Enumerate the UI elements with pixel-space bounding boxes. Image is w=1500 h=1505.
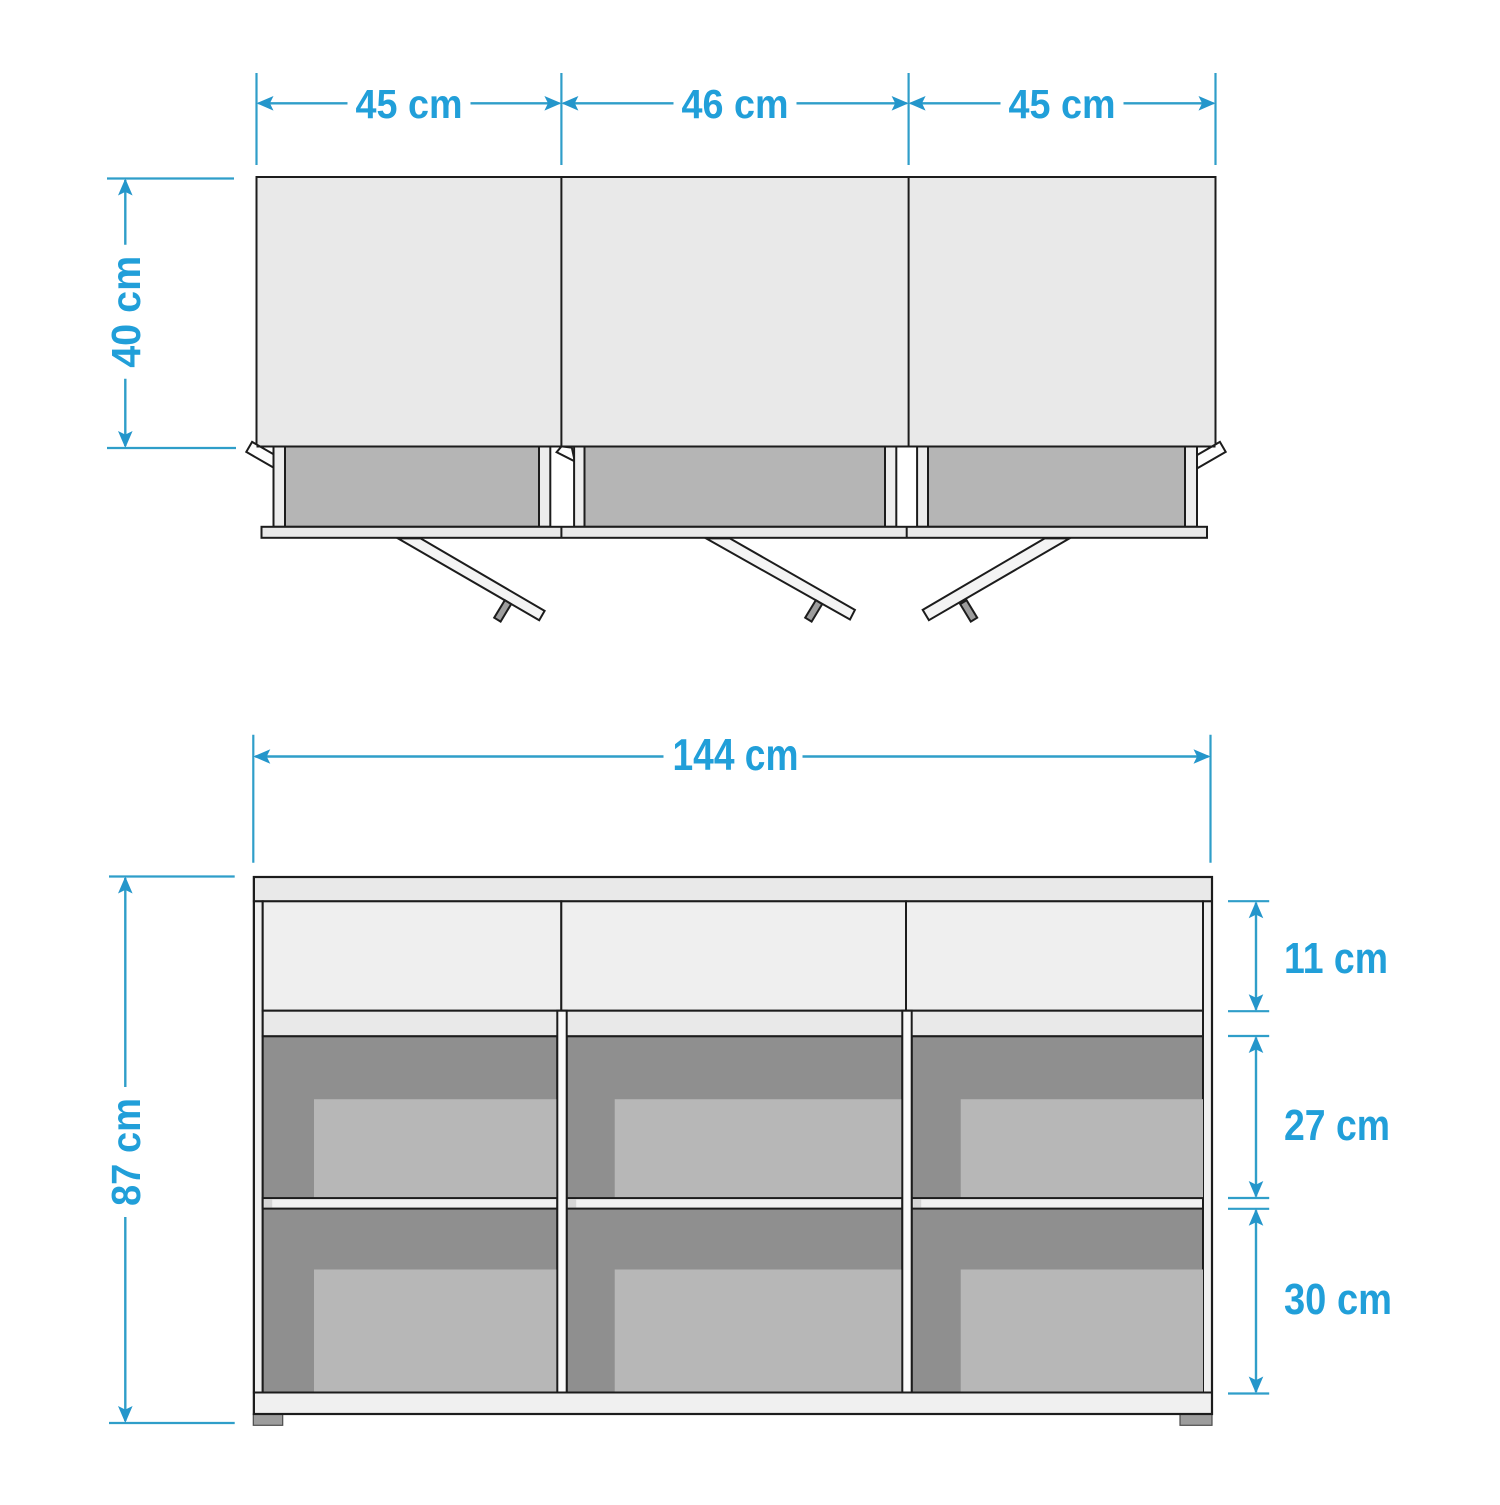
- svg-text:144 cm: 144 cm: [673, 731, 799, 780]
- svg-text:45 cm: 45 cm: [356, 81, 463, 127]
- svg-text:40 cm: 40 cm: [103, 256, 149, 368]
- svg-text:46 cm: 46 cm: [682, 81, 789, 127]
- svg-text:27 cm: 27 cm: [1284, 1101, 1390, 1150]
- svg-text:45 cm: 45 cm: [1009, 81, 1116, 127]
- svg-text:11 cm: 11 cm: [1284, 934, 1388, 983]
- svg-text:30 cm: 30 cm: [1284, 1275, 1392, 1324]
- svg-text:87 cm: 87 cm: [103, 1098, 149, 1206]
